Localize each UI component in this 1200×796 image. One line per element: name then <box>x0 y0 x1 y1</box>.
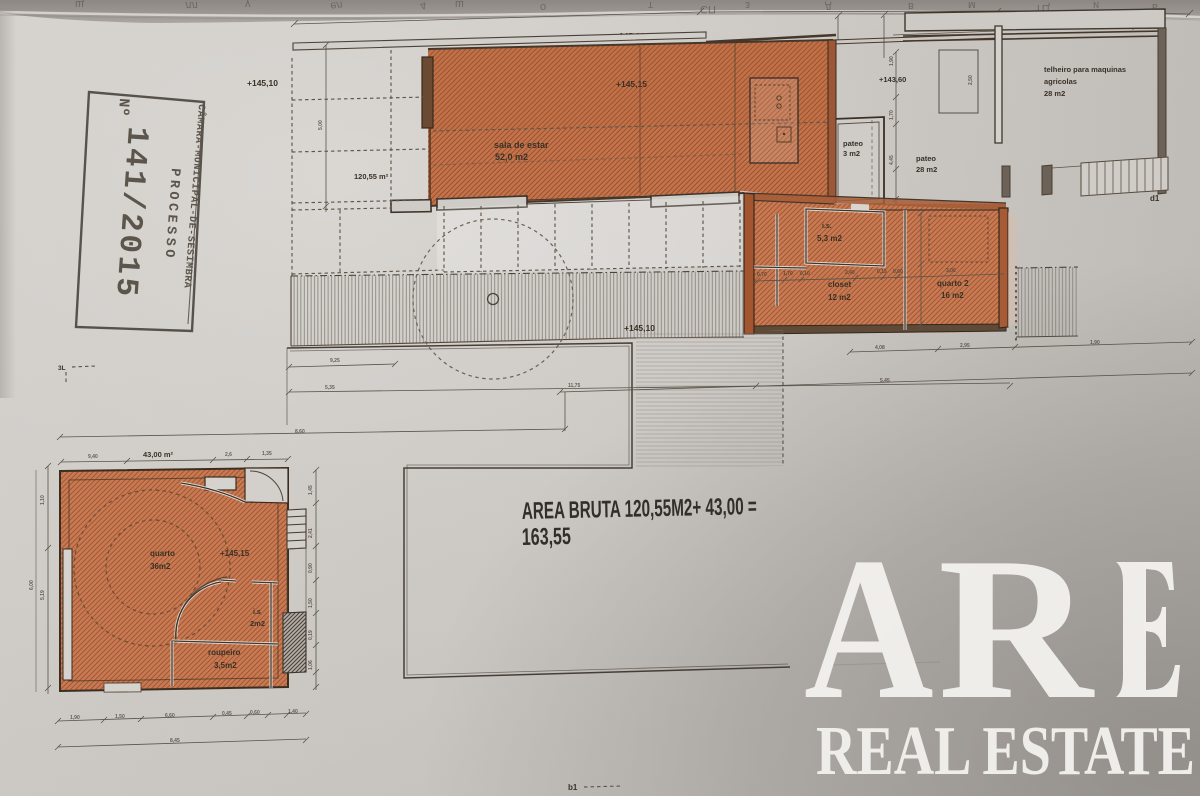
svg-text:quarto 2: quarto 2 <box>937 279 969 288</box>
svg-text:AREA BRUTA 120,55M2+ 43,00 =: AREA BRUTA 120,55M2+ 43,00 = <box>522 493 758 525</box>
svg-text:1,50: 1,50 <box>115 714 125 720</box>
svg-text:agricolas: agricolas <box>1044 77 1077 86</box>
svg-text:8,45: 8,45 <box>170 738 180 744</box>
svg-text:sala de estar: sala de estar <box>494 140 549 150</box>
svg-text:6,60: 6,60 <box>165 713 175 719</box>
svg-text:1,50: 1,50 <box>308 598 314 608</box>
svg-text:REAL ESTATE: REAL ESTATE <box>816 713 1195 790</box>
svg-text:R: R <box>938 517 1095 742</box>
svg-text:5,19: 5,19 <box>40 590 46 600</box>
svg-text:0,15: 0,15 <box>877 269 887 275</box>
svg-text:2,40: 2,40 <box>845 270 855 276</box>
svg-text:ш: ш <box>455 0 464 10</box>
svg-text:1,70: 1,70 <box>889 110 895 120</box>
svg-text:0,90: 0,90 <box>308 563 314 573</box>
svg-text:о: о <box>540 1 546 13</box>
svg-text:+145,15: +145,15 <box>616 79 647 89</box>
svg-text:telheiro para maquinas: telheiro para maquinas <box>1044 65 1126 74</box>
svg-text:roupeiro: roupeiro <box>208 648 241 657</box>
svg-text:43,00 m²: 43,00 m² <box>143 450 174 459</box>
svg-text:5,00: 5,00 <box>318 120 324 130</box>
svg-text:28 m2: 28 m2 <box>1044 89 1065 98</box>
svg-text:5,3 m2: 5,3 m2 <box>817 234 842 243</box>
svg-text:4,08: 4,08 <box>875 345 885 351</box>
svg-text:3,5m2: 3,5m2 <box>214 661 237 670</box>
svg-text:11,75: 11,75 <box>568 383 580 389</box>
svg-text:A: A <box>804 515 934 741</box>
svg-text:+145,10: +145,10 <box>624 323 655 333</box>
svg-text:i.s.: i.s. <box>822 223 832 230</box>
svg-text:СП: СП <box>700 3 716 15</box>
svg-text:quarto: quarto <box>150 549 175 558</box>
svg-text:1,40: 1,40 <box>288 709 298 715</box>
svg-text:+145,10: +145,10 <box>247 78 278 88</box>
svg-text:м: м <box>968 0 976 11</box>
svg-text:+145,15: +145,15 <box>220 549 250 558</box>
svg-text:з: з <box>745 0 750 11</box>
svg-text:28 m2: 28 m2 <box>916 165 937 174</box>
svg-text:16 m2: 16 m2 <box>941 291 964 300</box>
svg-text:т: т <box>648 0 653 11</box>
svg-text:+143,60: +143,60 <box>879 75 906 84</box>
svg-text:1,10: 1,10 <box>40 495 46 505</box>
svg-text:pateo: pateo <box>843 139 863 148</box>
svg-text:4,45: 4,45 <box>889 155 895 165</box>
svg-text:5,45: 5,45 <box>880 378 890 384</box>
svg-text:163,55: 163,55 <box>522 523 572 551</box>
svg-text:1,06: 1,06 <box>308 660 314 670</box>
svg-text:в: в <box>908 0 914 12</box>
svg-text:2,95: 2,95 <box>960 343 970 349</box>
svg-text:щ: щ <box>75 0 84 10</box>
svg-text:d1: d1 <box>1150 194 1160 203</box>
svg-text:5,35: 5,35 <box>325 385 335 391</box>
svg-text:1,90: 1,90 <box>70 715 80 721</box>
svg-text:9,25: 9,25 <box>330 358 340 364</box>
svg-text:4: 4 <box>420 0 426 11</box>
svg-text:ел: ел <box>330 0 344 12</box>
svg-text:pateo: pateo <box>916 154 936 163</box>
svg-text:3 m2: 3 m2 <box>843 149 860 158</box>
svg-text:1,90: 1,90 <box>889 56 895 66</box>
svg-text:9,40: 9,40 <box>88 454 98 460</box>
svg-text:3,00: 3,00 <box>946 268 956 274</box>
svg-text:1,70: 1,70 <box>783 271 793 277</box>
svg-text:b1: b1 <box>568 783 578 792</box>
svg-text:0,60: 0,60 <box>893 269 903 275</box>
svg-text:0,70: 0,70 <box>757 272 767 278</box>
svg-text:i.s: i.s <box>253 609 261 616</box>
svg-text:0,45: 0,45 <box>222 711 232 717</box>
svg-text:1,35: 1,35 <box>262 451 272 457</box>
svg-text:лл: лл <box>185 0 198 11</box>
svg-text:6,00: 6,00 <box>29 580 35 590</box>
svg-text:0,19: 0,19 <box>308 630 314 640</box>
svg-text:52,0 m2: 52,0 m2 <box>495 152 528 162</box>
svg-text:12 m2: 12 m2 <box>828 293 851 302</box>
svg-text:0,60: 0,60 <box>250 710 260 716</box>
svg-text:1,45: 1,45 <box>308 485 314 495</box>
svg-text:Nº: Nº <box>114 98 132 117</box>
svg-text:0,10: 0,10 <box>800 271 810 277</box>
svg-text:120,55 m²: 120,55 m² <box>354 172 389 181</box>
svg-text:8,60: 8,60 <box>295 429 305 435</box>
svg-text:36m2: 36m2 <box>150 562 171 571</box>
svg-text:2,41: 2,41 <box>308 528 314 538</box>
svg-text:3L: 3L <box>58 365 66 372</box>
svg-text:1,90: 1,90 <box>1090 340 1100 346</box>
svg-text:у: у <box>245 0 251 10</box>
svg-text:closet: closet <box>828 280 851 289</box>
svg-text:2,50: 2,50 <box>968 75 974 85</box>
svg-text:2,6: 2,6 <box>225 452 232 458</box>
svg-text:2m2: 2m2 <box>250 619 265 628</box>
